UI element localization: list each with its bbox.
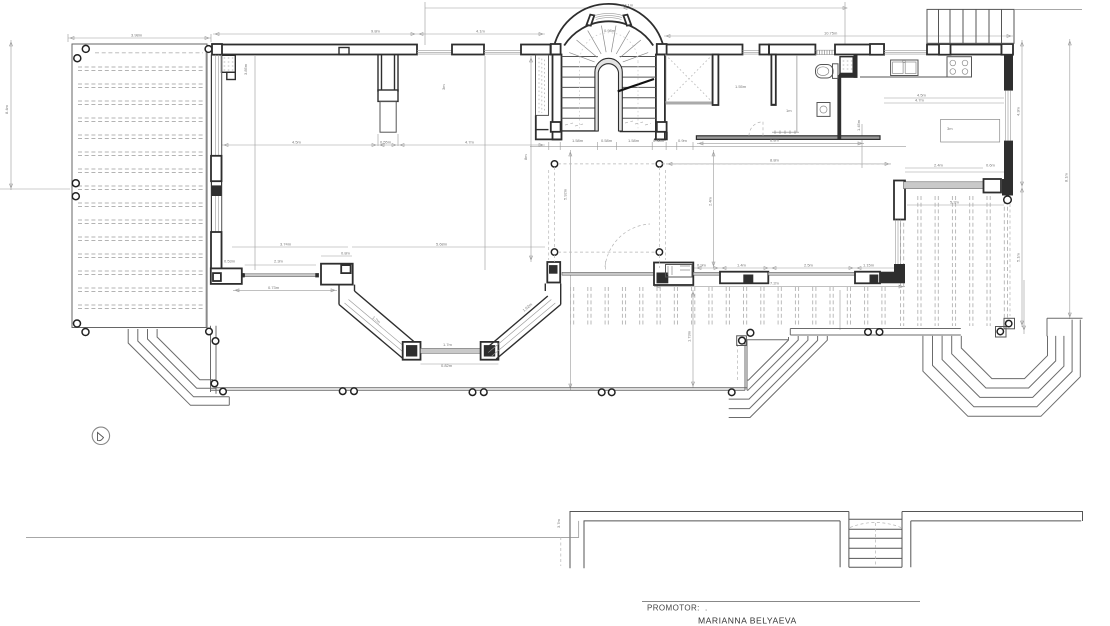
svg-text:0.38m: 0.38m (653, 138, 665, 143)
svg-text:8.1m: 8.1m (1064, 172, 1069, 182)
svg-text:3m: 3m (441, 84, 446, 90)
svg-text:1.58m: 1.58m (572, 138, 584, 143)
svg-text:2.4m: 2.4m (934, 163, 944, 168)
svg-text:1.45m: 1.45m (856, 119, 861, 131)
svg-text:1.73m: 1.73m (687, 330, 692, 342)
svg-text:1.7m: 1.7m (443, 342, 453, 347)
svg-text:PROMOTOR: .: PROMOTOR: . (647, 604, 708, 613)
svg-text:0.73m: 0.73m (268, 285, 280, 290)
svg-text:4.5m: 4.5m (292, 140, 302, 145)
svg-text:4.3m: 4.3m (1016, 106, 1021, 116)
svg-text:2.4m: 2.4m (708, 196, 713, 206)
svg-text:1.55m: 1.55m (735, 84, 747, 89)
svg-text:0.8m: 0.8m (341, 251, 351, 256)
svg-text:3.98m: 3.98m (131, 33, 143, 38)
svg-text:8.8m: 8.8m (770, 158, 780, 163)
svg-text:0.82m: 0.82m (441, 363, 453, 368)
svg-text:8.4m: 8.4m (4, 104, 9, 114)
svg-text:1.4m: 1.4m (737, 263, 747, 268)
svg-text:0.53m: 0.53m (224, 259, 236, 264)
svg-text:3m: 3m (947, 126, 953, 131)
svg-text:1.62m: 1.62m (521, 301, 533, 312)
svg-text:9.8m: 9.8m (371, 29, 381, 34)
svg-text:10.75m: 10.75m (824, 31, 838, 36)
svg-text:1m: 1m (786, 108, 792, 113)
svg-text:3.85m: 3.85m (243, 63, 248, 75)
svg-text:0.98m: 0.98m (604, 28, 616, 33)
svg-text:4.7m: 4.7m (915, 98, 925, 103)
svg-text:8m: 8m (523, 154, 528, 160)
svg-text:0.9m: 0.9m (697, 263, 707, 268)
svg-text:0.9m: 0.9m (678, 138, 688, 143)
svg-text:0.6m: 0.6m (986, 163, 996, 168)
svg-text:7.2m: 7.2m (770, 281, 780, 286)
svg-text:5.2m: 5.2m (950, 200, 960, 205)
svg-text:5.92m: 5.92m (563, 188, 568, 200)
svg-text:2.5m: 2.5m (804, 263, 814, 268)
svg-text:6.8m: 6.8m (770, 138, 780, 143)
svg-text:5.1m: 5.1m (1016, 252, 1021, 262)
svg-text:1.15m: 1.15m (863, 263, 875, 268)
svg-text:3.74m: 3.74m (280, 242, 292, 247)
svg-text:1.58m: 1.58m (628, 138, 640, 143)
svg-text:2.3m: 2.3m (274, 259, 284, 264)
svg-text:0.55m: 0.55m (380, 140, 392, 145)
svg-text:23.1m: 23.1m (622, 3, 634, 8)
svg-text:3.7m: 3.7m (556, 518, 561, 528)
svg-text:MARIANNA BELYAEVA: MARIANNA BELYAEVA (698, 616, 797, 626)
svg-text:0.58m: 0.58m (601, 138, 613, 143)
svg-text:4.1m: 4.1m (476, 29, 486, 34)
svg-text:5.68m: 5.68m (436, 242, 448, 247)
svg-text:4.7m: 4.7m (465, 140, 475, 145)
